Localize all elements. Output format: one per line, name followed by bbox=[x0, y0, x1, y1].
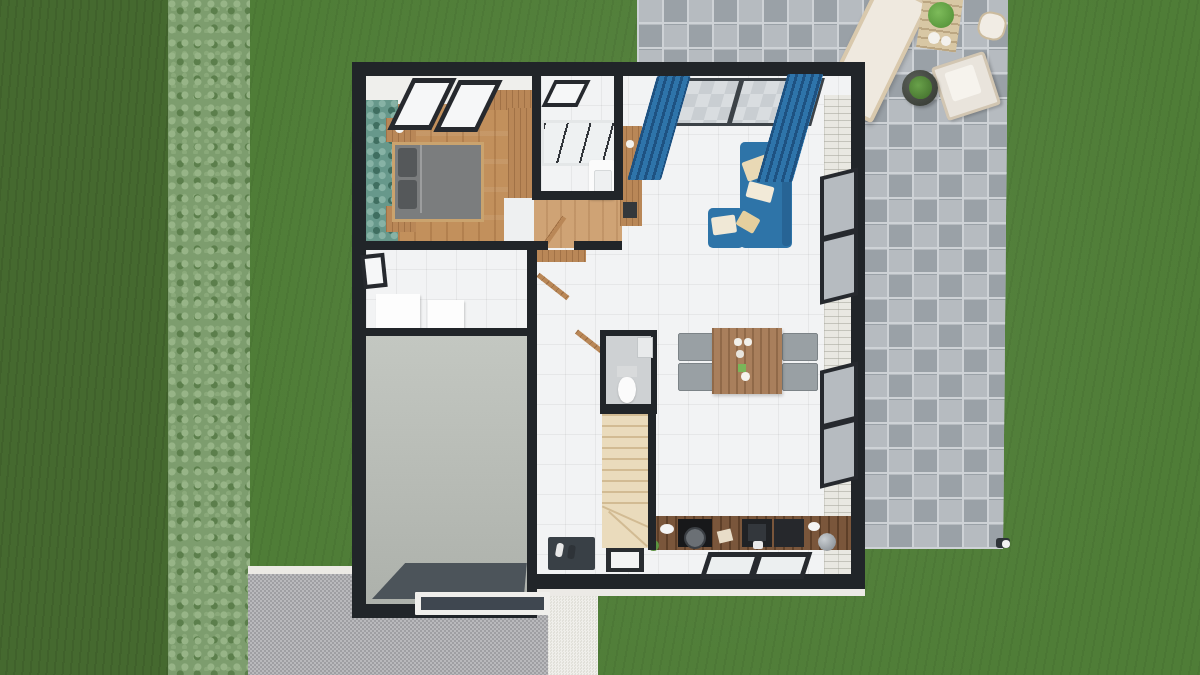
wall-bottom-outer-face bbox=[535, 588, 865, 596]
garden-plate[interactable] bbox=[928, 32, 940, 44]
coat-shelf[interactable] bbox=[536, 250, 586, 262]
toilet-bowl[interactable] bbox=[618, 377, 636, 403]
walkway bbox=[548, 586, 598, 675]
console-decor-cup bbox=[626, 140, 634, 148]
wall-left bbox=[352, 62, 366, 618]
wall-bedroom-bottom-right bbox=[574, 241, 622, 250]
bed-pillow bbox=[398, 180, 417, 209]
dining-chair[interactable] bbox=[678, 363, 714, 391]
table-plate bbox=[741, 372, 750, 381]
garage-door-panel bbox=[421, 597, 544, 610]
washer-box[interactable] bbox=[376, 294, 420, 330]
toilet-tank bbox=[617, 366, 637, 377]
lawn-dark-strip bbox=[0, 0, 168, 675]
garden-light-dome bbox=[1002, 540, 1010, 548]
table-plate bbox=[734, 338, 742, 346]
facade-window-upper[interactable] bbox=[820, 167, 858, 304]
sink-faucet bbox=[753, 541, 763, 549]
wall-stairs-top bbox=[600, 404, 656, 414]
dining-chair[interactable] bbox=[782, 333, 818, 361]
bedroom-closet-nook bbox=[504, 198, 534, 241]
wall-bottom-main bbox=[527, 574, 865, 589]
sofa-cushion[interactable] bbox=[711, 214, 737, 235]
floorplan-render bbox=[0, 0, 1200, 675]
cooktop-pan bbox=[684, 527, 706, 549]
dining-chair[interactable] bbox=[678, 333, 714, 361]
sink-basin bbox=[748, 524, 766, 541]
kettle[interactable] bbox=[818, 533, 836, 551]
kitchen-dish bbox=[808, 522, 820, 531]
kitchen-floor-skylight[interactable] bbox=[700, 552, 813, 579]
wall-garage-right bbox=[527, 248, 537, 604]
bed-pillow bbox=[398, 148, 417, 177]
wall-right bbox=[851, 62, 865, 590]
salad-bowl[interactable] bbox=[928, 2, 954, 28]
wall-bath-right bbox=[614, 76, 623, 200]
facade-window-lower[interactable] bbox=[820, 361, 858, 488]
front-door-panel bbox=[611, 552, 639, 568]
console-decor-dark bbox=[623, 202, 637, 218]
laundry-window[interactable] bbox=[360, 253, 387, 289]
wall-bath-bottom bbox=[532, 191, 623, 200]
garden-plate[interactable] bbox=[941, 36, 951, 46]
dining-chair[interactable] bbox=[782, 363, 818, 391]
wall-laundry-garage bbox=[360, 328, 527, 336]
wc-sink[interactable] bbox=[637, 337, 653, 358]
hedge-row bbox=[168, 0, 250, 675]
table-plate bbox=[744, 338, 752, 346]
dryer-box[interactable] bbox=[428, 300, 464, 331]
wall-stairs-right bbox=[648, 408, 656, 550]
table-plate bbox=[736, 350, 744, 358]
sliding-door-mullion bbox=[727, 81, 744, 123]
bed-duvet-fold bbox=[420, 145, 422, 213]
table-napkin-green bbox=[738, 364, 746, 372]
planter-plant bbox=[909, 76, 932, 99]
staircase[interactable] bbox=[602, 414, 648, 506]
wall-bedroom-bottom-left bbox=[352, 241, 548, 250]
kitchen-module-dark[interactable] bbox=[774, 519, 804, 547]
kitchen-dish bbox=[660, 524, 674, 534]
wall-bed-bath-divider bbox=[532, 76, 541, 196]
